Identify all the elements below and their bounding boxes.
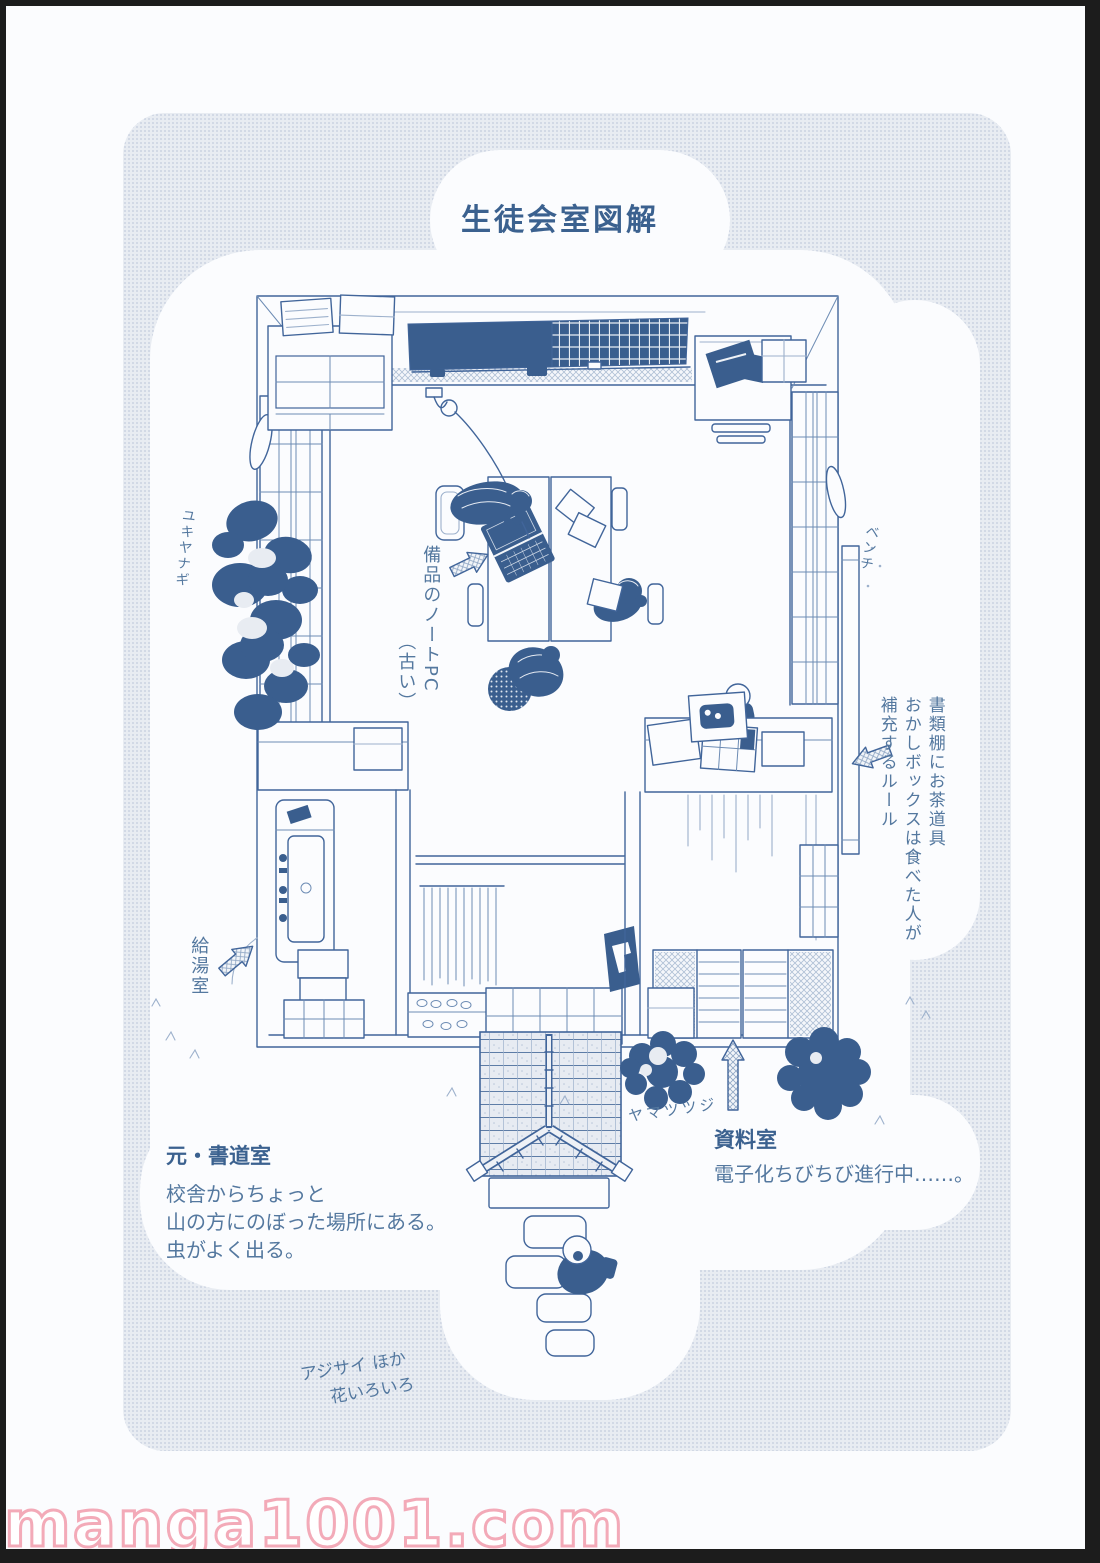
label-room-line1: 校舎からちょっと (166, 1180, 326, 1208)
bench (842, 546, 859, 854)
frame-left (0, 0, 6, 1563)
shoe-shelf (408, 993, 488, 1037)
label-archive-heading: 資料室 (714, 1126, 777, 1155)
frame-bottom (0, 1549, 1100, 1563)
flat-bookshelves (648, 950, 833, 1038)
label-archive-line1: 電子化ちびちび進行中……。 (714, 1160, 974, 1188)
archive-arrow-icon (722, 1040, 744, 1110)
frame-top (0, 0, 1100, 6)
label-room-heading: 元・書道室 (166, 1142, 271, 1171)
label-room-line2: 山の方にのぼった場所にある。 (166, 1208, 446, 1236)
storage-cabinet (268, 295, 395, 430)
porch-roof (466, 1032, 632, 1208)
kitchen-arrow-icon (215, 938, 260, 981)
frame-right (1085, 0, 1100, 1563)
tea-table (688, 692, 747, 742)
trash-bin (604, 926, 640, 992)
label-snack-rule-line2: おかしボックスは食べた人が (898, 696, 922, 943)
archive-window (800, 845, 838, 937)
blackboard (408, 321, 552, 370)
label-room-line3: 虫がよく出る。 (166, 1236, 305, 1264)
label-laptop-line2: （古い） (393, 632, 418, 712)
sink (276, 800, 334, 962)
round-bush (777, 1027, 871, 1120)
right-wall-windows (792, 392, 849, 704)
label-kitchen: 給湯室 (186, 936, 211, 996)
label-snack-rule-line3: 補充するルール (874, 696, 898, 829)
page-title: 生徒会室図解 (461, 200, 659, 242)
label-laptop-line1: 備品のノートPC (418, 545, 443, 692)
manga-page: 生徒会室図解 ユキヤナギ 備品のノートPC （古い） ベンチ 書類棚にお茶道具 … (0, 0, 1100, 1563)
tile-floor (284, 1000, 364, 1038)
label-snack-rule-line1: 書類棚にお茶道具 (922, 696, 946, 848)
